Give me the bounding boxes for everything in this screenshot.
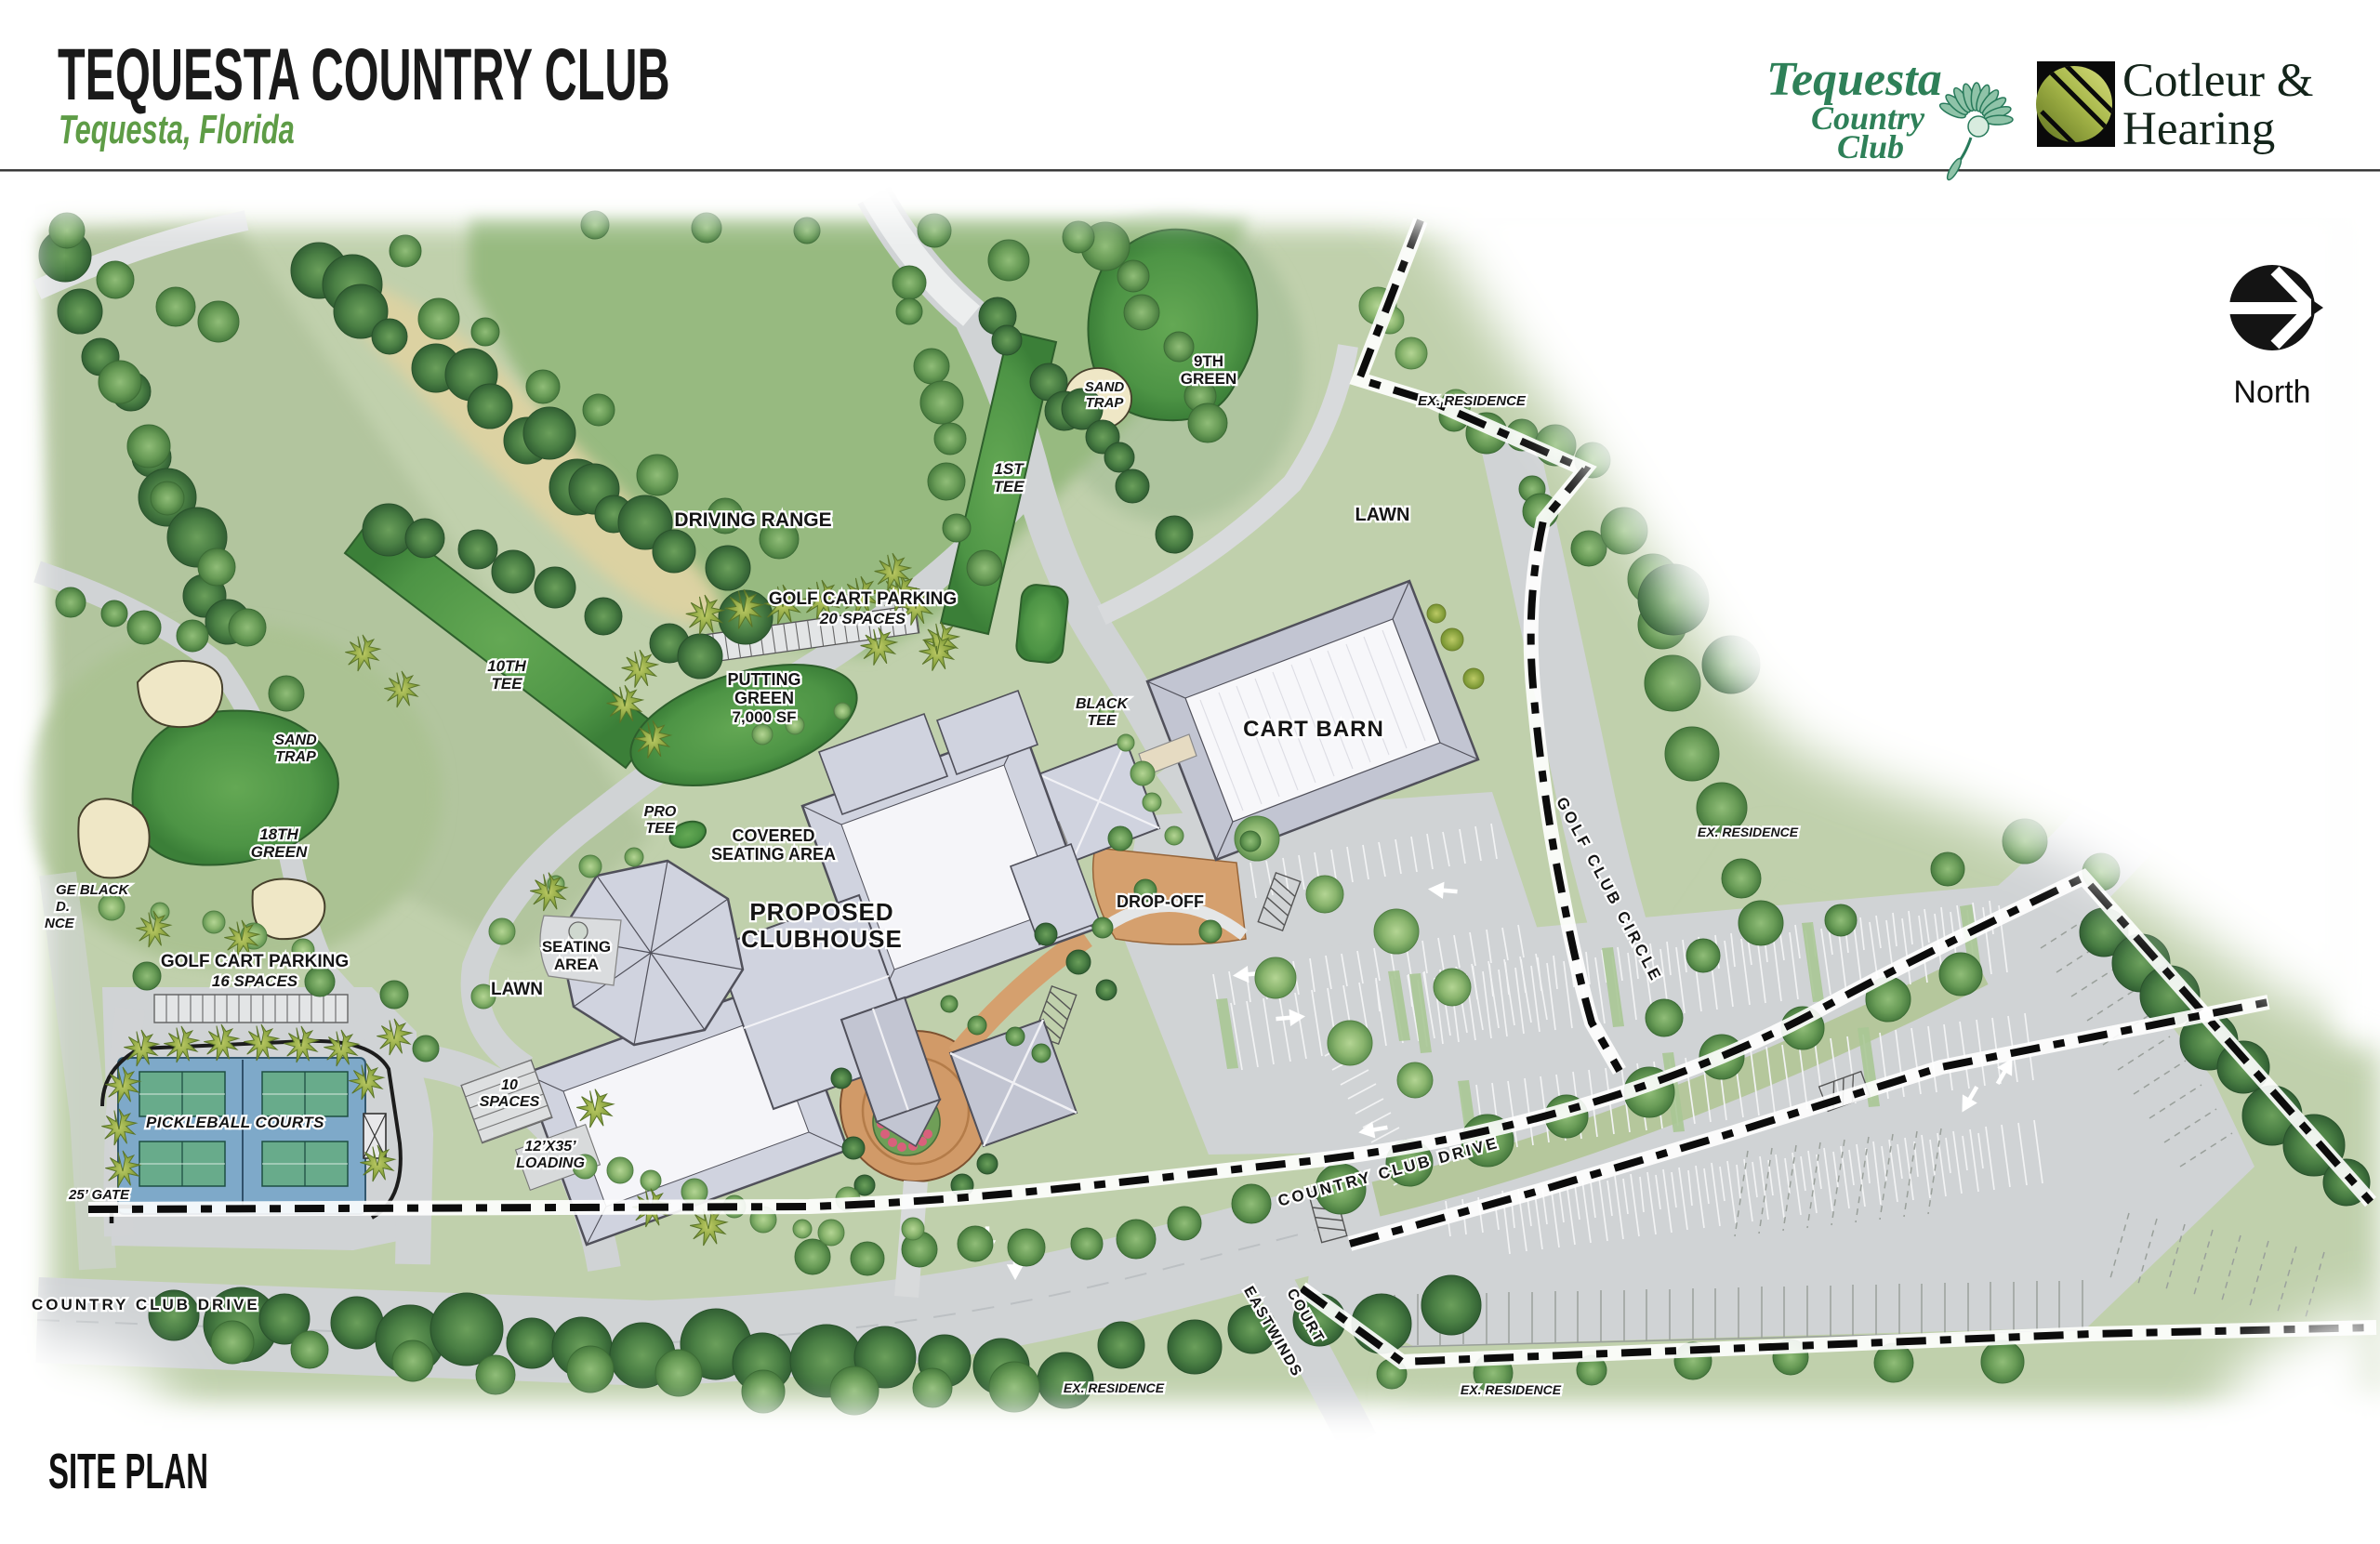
svg-text:EX. RESIDENCE: EX. RESIDENCE xyxy=(1418,393,1527,409)
svg-text:EX. RESIDENCE: EX. RESIDENCE xyxy=(1698,825,1799,839)
svg-text:25’ GATE: 25’ GATE xyxy=(68,1187,130,1203)
svg-text:GREEN: GREEN xyxy=(734,689,794,707)
svg-text:TEE: TEE xyxy=(993,478,1025,495)
svg-text:Hearing: Hearing xyxy=(2122,103,2275,155)
svg-text:PICKLEBALL COURTS: PICKLEBALL COURTS xyxy=(146,1114,324,1131)
svg-text:COUNTRY CLUB DRIVE: COUNTRY CLUB DRIVE xyxy=(32,1296,260,1313)
svg-text:10TH: 10TH xyxy=(487,657,526,675)
svg-text:PUTTING: PUTTING xyxy=(728,670,801,689)
svg-text:TEE: TEE xyxy=(645,821,675,837)
svg-text:AREA: AREA xyxy=(554,956,599,973)
svg-text:10: 10 xyxy=(501,1077,518,1093)
svg-text:PROPOSED: PROPOSED xyxy=(749,898,893,926)
svg-text:PRO: PRO xyxy=(644,804,677,820)
svg-text:Tequesta, Florida: Tequesta, Florida xyxy=(59,108,295,153)
svg-text:TEQUESTA COUNTRY CLUB: TEQUESTA COUNTRY CLUB xyxy=(58,33,670,115)
svg-text:EX. RESIDENCE: EX. RESIDENCE xyxy=(1461,1382,1562,1397)
svg-text:TRAP: TRAP xyxy=(1086,395,1125,411)
svg-text:GE BLACK: GE BLACK xyxy=(56,882,130,898)
svg-text:CART BARN: CART BARN xyxy=(1243,717,1384,742)
svg-text:Cotleur &: Cotleur & xyxy=(2122,55,2313,107)
svg-text:Tequesta: Tequesta xyxy=(1766,53,1942,106)
svg-text:7,000 SF: 7,000 SF xyxy=(733,708,797,726)
svg-text:North: North xyxy=(2233,375,2310,410)
svg-text:SPACES: SPACES xyxy=(480,1094,540,1110)
svg-text:DROP-OFF: DROP-OFF xyxy=(1117,892,1204,911)
svg-text:SAND: SAND xyxy=(274,732,317,748)
svg-text:EX. RESIDENCE: EX. RESIDENCE xyxy=(1064,1380,1165,1395)
svg-text:16 SPACES: 16 SPACES xyxy=(212,972,298,990)
svg-text:NCE: NCE xyxy=(45,916,75,931)
svg-text:SAND: SAND xyxy=(1085,379,1125,395)
svg-text:GREEN: GREEN xyxy=(251,843,308,861)
svg-text:GOLF CART PARKING: GOLF CART PARKING xyxy=(769,589,957,609)
svg-text:GREEN: GREEN xyxy=(1181,370,1236,388)
svg-text:Club: Club xyxy=(1837,128,1904,165)
svg-text:DRIVING RANGE: DRIVING RANGE xyxy=(674,509,831,531)
svg-text:LAWN: LAWN xyxy=(491,980,543,999)
svg-text:20 SPACES: 20 SPACES xyxy=(819,610,906,627)
svg-text:TEE: TEE xyxy=(491,675,522,693)
svg-text:GOLF CART PARKING: GOLF CART PARKING xyxy=(161,952,349,971)
svg-text:SEATING: SEATING xyxy=(542,938,611,956)
svg-text:9TH: 9TH xyxy=(1194,352,1223,370)
svg-text:SEATING AREA: SEATING AREA xyxy=(711,845,836,864)
svg-text:18TH: 18TH xyxy=(259,825,298,843)
svg-text:LOADING: LOADING xyxy=(516,1155,585,1171)
svg-text:CLUBHOUSE: CLUBHOUSE xyxy=(741,925,903,953)
svg-text:1ST: 1ST xyxy=(994,460,1025,478)
svg-text:12’X35’: 12’X35’ xyxy=(524,1139,576,1155)
svg-text:D.: D. xyxy=(56,899,70,915)
svg-text:COVERED: COVERED xyxy=(732,826,814,845)
svg-text:LAWN: LAWN xyxy=(1355,505,1410,525)
svg-text:BLACK: BLACK xyxy=(1076,696,1129,712)
svg-text:SITE PLAN: SITE PLAN xyxy=(48,1445,208,1499)
svg-text:TEE: TEE xyxy=(1087,713,1117,729)
svg-text:TRAP: TRAP xyxy=(275,749,316,765)
